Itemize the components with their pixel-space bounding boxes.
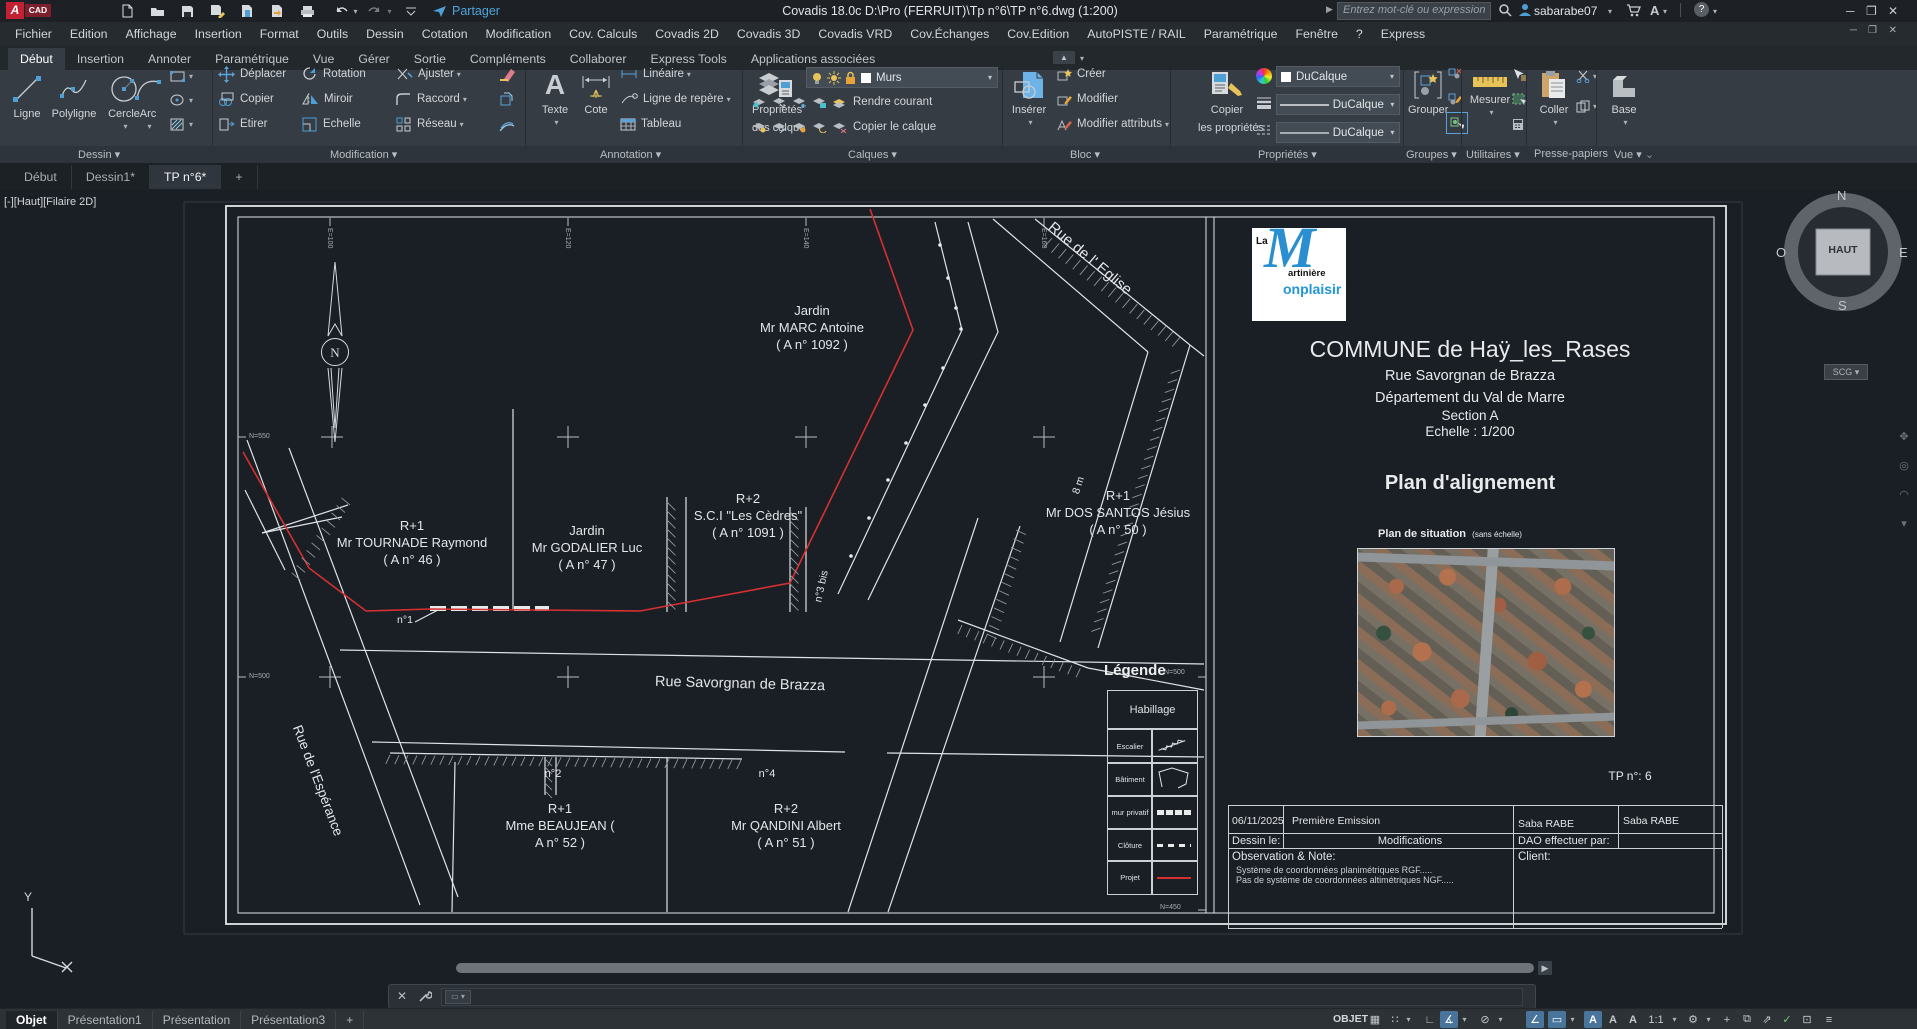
parcel-label-godalier: JardinMr GODALIER Luc( A n° 47 ) xyxy=(497,522,677,573)
tb-obs1: Système de coordonnées planimétriques RG… xyxy=(1236,865,1432,875)
tb-dao: DAO effectuer par: xyxy=(1518,835,1610,847)
titleblock-section: Section A xyxy=(1230,408,1710,423)
tb-name2: Saba RABE xyxy=(1623,815,1679,827)
svg-text:N: N xyxy=(330,345,340,360)
status-bar: ObjetPrésentation1PrésentationPrésentati… xyxy=(0,1008,1917,1029)
grid-label: E=100 xyxy=(326,228,333,248)
tb-line xyxy=(1228,805,1722,806)
martiniere-logo: La M artinière onplaisir xyxy=(1252,228,1346,321)
annotation-scale-value[interactable]: 1:1 xyxy=(1644,1011,1668,1028)
annotation-autoscale-icon[interactable]: A xyxy=(1604,1011,1622,1028)
titleblock-departement: Département du Val de Marre xyxy=(1230,390,1710,406)
tb-line xyxy=(1228,833,1722,834)
fullscreen-icon[interactable]: ⊡ xyxy=(1798,1011,1816,1028)
tb-dessin-le: Dessin le: xyxy=(1232,835,1280,847)
titleblock-tp-number: TP n°: 6 xyxy=(1560,769,1700,783)
grid-label: E=120 xyxy=(564,228,571,248)
command-recent-icon[interactable]: ▭ ▾ xyxy=(445,990,471,1004)
small-label-n1: n°1 xyxy=(390,612,420,629)
parcel-label-qandini: R+2Mr QANDINI Albert( A n° 51 ) xyxy=(686,800,886,851)
legend-symbol-building xyxy=(1151,762,1198,797)
viewcube-south[interactable]: S xyxy=(1838,298,1847,313)
grid-label: N=500 xyxy=(249,673,270,680)
command-input[interactable]: ▭ ▾ xyxy=(441,988,1523,1006)
legend-label: Escalier xyxy=(1107,728,1153,764)
grid-label: N=550 xyxy=(249,433,270,440)
customization-menu-icon[interactable]: ≡ xyxy=(1820,1011,1838,1028)
grid-label: E=160 xyxy=(1040,228,1047,248)
grid-label: N=500 xyxy=(1164,669,1185,676)
scroll-right-arrow-icon[interactable]: ▶ xyxy=(1538,961,1552,975)
grid-toggle-icon[interactable]: ▦ xyxy=(1366,1011,1384,1028)
small-label-n4: n°4 xyxy=(752,766,782,783)
mode-indicator[interactable]: OBJET xyxy=(1333,1013,1368,1025)
titleblock-plan-title: Plan d'alignement xyxy=(1230,472,1710,495)
legend-label: Projet xyxy=(1107,860,1153,895)
legend-symbol-wall xyxy=(1151,795,1198,830)
viewcube-north[interactable]: N xyxy=(1837,188,1846,203)
layout-tab[interactable]: Objet xyxy=(6,1011,58,1029)
grid-label: N=450 xyxy=(1160,904,1181,911)
scale-dropdown-icon[interactable]: ▾ xyxy=(1668,1011,1678,1028)
titleblock-echelle: Echelle : 1/200 xyxy=(1230,424,1710,439)
viewcube-east[interactable]: E xyxy=(1899,245,1908,260)
layout-tab[interactable]: Présentation xyxy=(153,1011,241,1029)
polar-toggle-icon[interactable]: ∡ xyxy=(1440,1011,1458,1028)
command-bar[interactable]: ✕ ▭ ▾ xyxy=(388,984,1536,1009)
north-arrow-icon: N xyxy=(322,262,349,442)
settings-gear-icon[interactable]: ⚙ xyxy=(1684,1011,1702,1028)
parcel-label-dossantos: R+1Mr DOS SANTOS Jésius( A n° 50 ) xyxy=(1018,487,1218,538)
workspace-icon[interactable]: ⧉ xyxy=(1738,1011,1756,1028)
legend-header: Habillage xyxy=(1107,690,1198,730)
performance-icon[interactable]: ⇗ xyxy=(1758,1011,1776,1028)
legend-label: Clôture xyxy=(1107,828,1153,862)
settings-dropdown-icon[interactable]: ▾ xyxy=(1702,1011,1712,1028)
tb-modifications: Modifications xyxy=(1330,835,1490,847)
legend-symbol-stairs xyxy=(1151,728,1198,764)
titleblock-situation: Plan de situation (sans échelle) xyxy=(1230,528,1670,540)
situation-photo xyxy=(1357,548,1615,737)
tb-line xyxy=(1228,848,1722,849)
tb-line xyxy=(1228,928,1722,929)
titleblock-street: Rue Savorgnan de Brazza xyxy=(1230,368,1710,384)
annotation-scale-icon[interactable]: A xyxy=(1624,1011,1642,1028)
viewcube-west[interactable]: O xyxy=(1776,245,1786,260)
legend-label: mur privatif xyxy=(1107,795,1153,830)
tb-line xyxy=(1618,805,1619,848)
annotation-visibility-icon[interactable]: A xyxy=(1584,1011,1602,1028)
ortho-toggle-icon[interactable]: ∟ xyxy=(1421,1011,1439,1028)
legend-symbol-fence xyxy=(1151,828,1198,862)
tb-emission: Première Emission xyxy=(1292,815,1380,827)
tb-line xyxy=(1513,805,1514,928)
map-drawing: N xyxy=(0,0,1917,1029)
viewport-controls[interactable]: [-][Haut][Filaire 2D] xyxy=(4,196,96,208)
graphics-check-icon[interactable]: ✓ xyxy=(1778,1011,1796,1028)
zoom-icon[interactable]: ◎ xyxy=(1899,459,1909,472)
legend-symbol-project xyxy=(1151,860,1198,895)
command-close-icon[interactable]: ✕ xyxy=(397,989,407,1003)
tb-obs-title: Observation & Note: xyxy=(1232,851,1336,863)
tb-line xyxy=(1228,805,1229,928)
parcel-label-marc: JardinMr MARC Antoine( A n° 1092 ) xyxy=(712,302,912,353)
layout-tabs: ObjetPrésentation1PrésentationPrésentati… xyxy=(6,1009,364,1029)
viewcube-top[interactable]: HAUT xyxy=(1816,244,1870,256)
grid-label: E=140 xyxy=(802,228,809,248)
titleblock-commune: COMMUNE de Haÿ_les_Rases xyxy=(1230,336,1710,363)
tb-obs2: Pas de système de coordonnées altimétriq… xyxy=(1236,875,1454,885)
parcel-label-beaujean: R+1Mme BEAUJEAN (A n° 52 ) xyxy=(460,800,660,851)
survey-points xyxy=(849,243,963,558)
legend-label: Bâtiment xyxy=(1107,762,1153,797)
horizontal-scrollbar[interactable] xyxy=(456,963,1534,973)
scg-button[interactable]: SCG ▾ xyxy=(1824,364,1868,380)
osnap-toggle-icon[interactable]: ▭ xyxy=(1548,1011,1566,1028)
layout-tab[interactable]: Présentation3 xyxy=(241,1011,336,1029)
application-window: A CAD ▾ ▾ Partager Covadis 18.0c D:\Pro … xyxy=(0,0,1917,1029)
parcel-label-tournade: R+1Mr TOURNADE Raymond( A n° 46 ) xyxy=(292,517,532,568)
add-status-icon[interactable]: + xyxy=(1718,1011,1736,1028)
osnap-dropdown-icon[interactable]: ▾ xyxy=(1566,1011,1576,1028)
layout-tab[interactable]: Présentation1 xyxy=(58,1011,153,1029)
legend-title: Légende xyxy=(1104,662,1166,679)
small-label-n2: n°2 xyxy=(538,766,568,783)
layout-tab[interactable]: + xyxy=(336,1011,364,1029)
isodraft-toggle-icon[interactable]: ⊘ xyxy=(1476,1011,1494,1028)
parcel-label-cedres: R+2S.C.I "Les Cèdres"( A n° 1091 ) xyxy=(658,490,838,541)
navigation-bar[interactable]: ✥ ◎ ◠ ▾ xyxy=(1896,430,1912,560)
otrack-toggle-icon[interactable]: ∠ xyxy=(1526,1011,1544,1028)
isodraft-dropdown-icon[interactable]: ▾ xyxy=(1494,1011,1504,1028)
tb-line xyxy=(1722,805,1723,928)
orbit-icon[interactable]: ◠ xyxy=(1899,488,1909,501)
tb-client: Client: xyxy=(1518,851,1551,863)
tb-name1: Saba RABE xyxy=(1518,818,1574,830)
tb-date: 06/11/2025 xyxy=(1232,815,1284,827)
command-customize-icon[interactable] xyxy=(417,989,432,1004)
pan-icon[interactable]: ✥ xyxy=(1899,430,1908,443)
snap-dropdown-icon[interactable]: ▾ xyxy=(1402,1011,1412,1028)
navbar-more-icon[interactable]: ▾ xyxy=(1901,517,1907,530)
polar-dropdown-icon[interactable]: ▾ xyxy=(1458,1011,1468,1028)
ucs-y-label: Y xyxy=(24,890,32,904)
